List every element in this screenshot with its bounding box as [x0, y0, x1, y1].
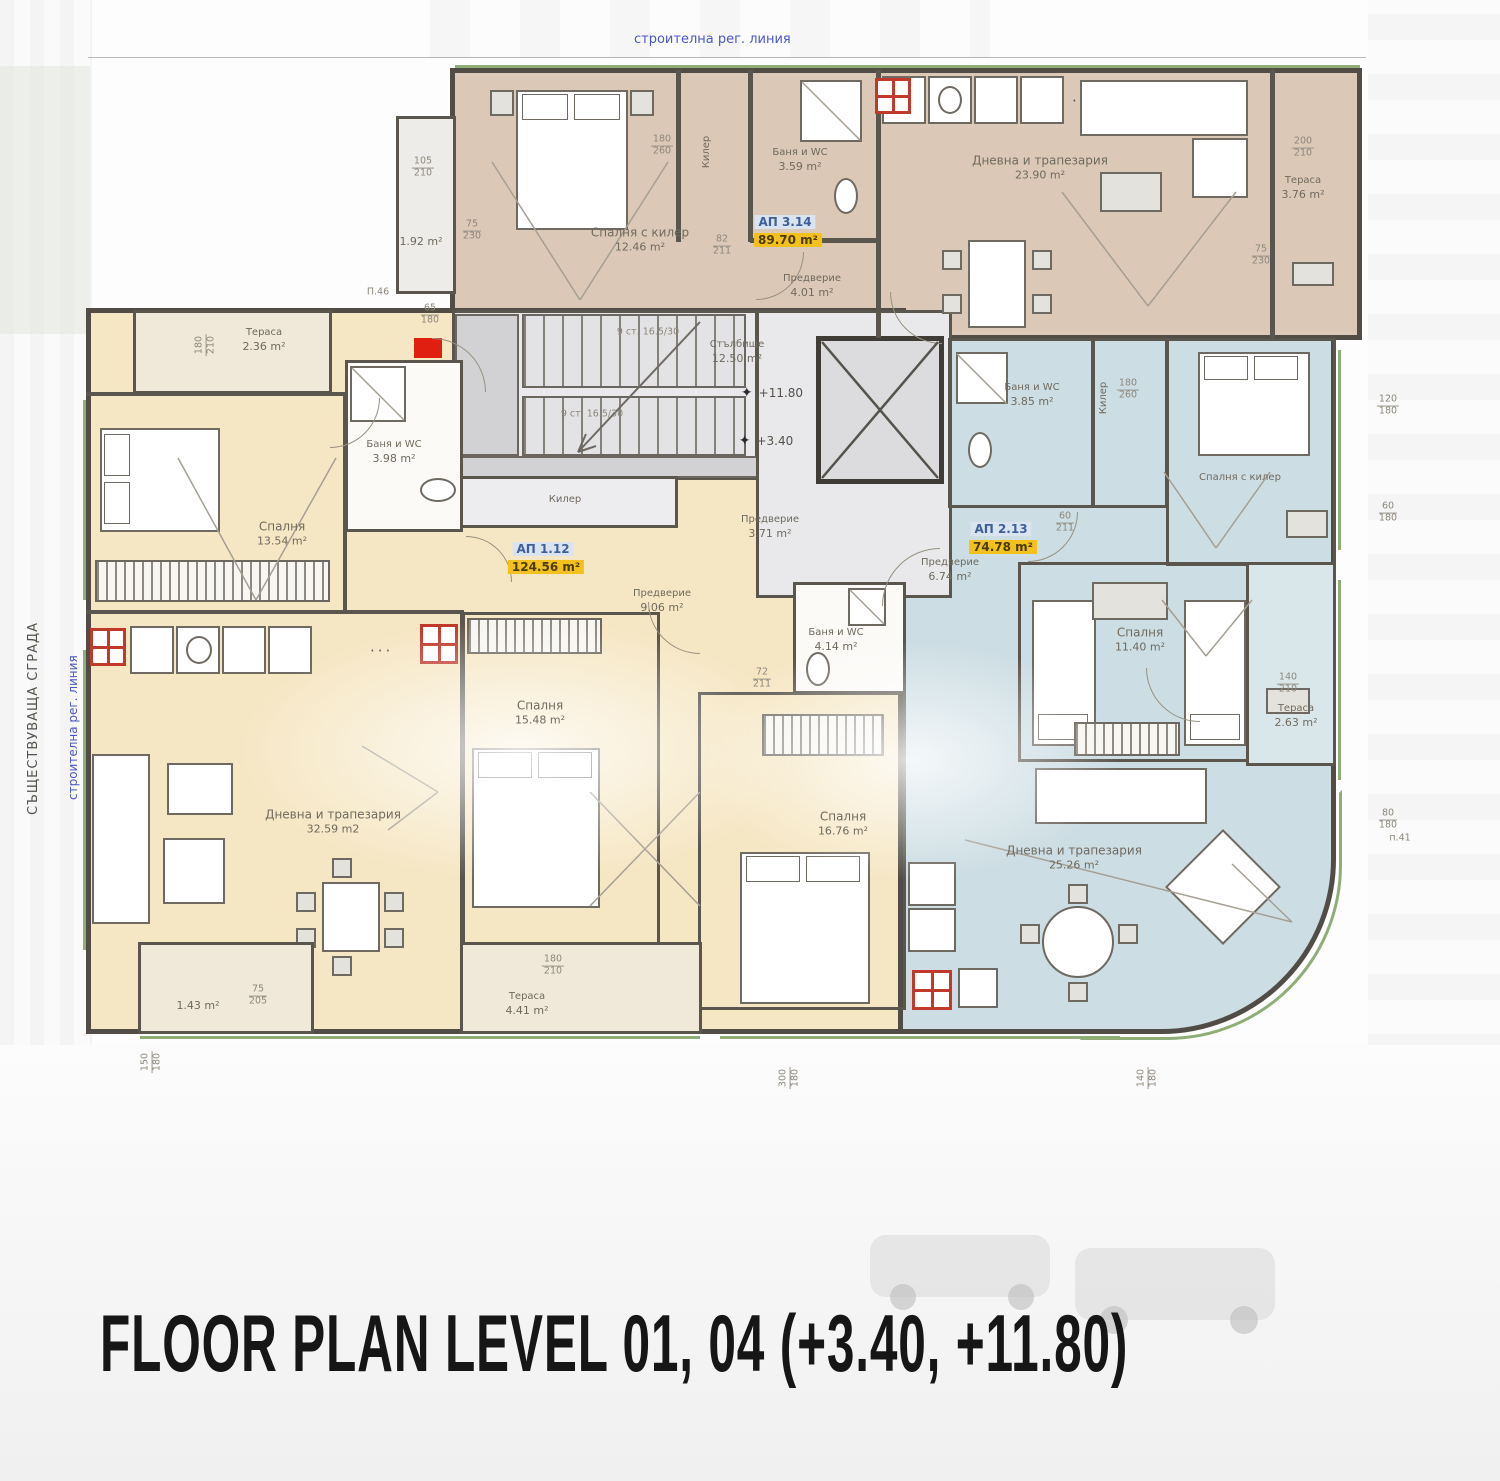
- dimension-label: 150180: [141, 1051, 164, 1073]
- room-label-bedroom-blue: Спалня 11.40 m²: [1115, 626, 1165, 655]
- dining-table-icon: [968, 240, 1026, 328]
- dimension-label: 65180: [421, 304, 439, 327]
- background-street: [0, 1045, 1500, 1481]
- dimension-label: 120180: [1377, 395, 1399, 418]
- dimension-label: 60211: [1056, 512, 1074, 535]
- room-label-terrace-small: 1.92 m²: [399, 235, 442, 249]
- kitchen-sink: [908, 908, 956, 952]
- dimension-label: 180260: [651, 135, 673, 158]
- background-greenery: [0, 66, 90, 334]
- dimension-label: 180210: [542, 955, 564, 978]
- room-label-bedroom-closet-blue: Спалня с килер: [1199, 472, 1281, 485]
- apartment-area-badge: 124.56 m²: [508, 560, 584, 574]
- chair-icon: [296, 892, 316, 912]
- stair-note: 9 ст. 16.5/30: [561, 409, 623, 420]
- coffee-table-icon: [1100, 172, 1162, 212]
- armchair-icon: [167, 763, 233, 815]
- shower-icon: [956, 352, 1008, 404]
- window-line: [83, 650, 86, 950]
- pillow-icon: [104, 434, 130, 476]
- sofa-icon: [92, 754, 150, 924]
- apartment-area-badge: 89.70 m²: [754, 233, 822, 247]
- desk-icon: [1092, 582, 1168, 620]
- room-label-bedroom-3: Спалня 16.76 m²: [818, 810, 868, 839]
- dimension-label: 75205: [249, 985, 267, 1008]
- shower-icon: [800, 80, 862, 142]
- wall: [1270, 70, 1275, 338]
- elevator: [816, 336, 944, 484]
- room-label-closet-tan: Килер: [701, 136, 714, 169]
- room-label-lobby: Предверие 3.71 m²: [741, 514, 799, 540]
- dimension-label: 75230: [1252, 245, 1270, 268]
- room-label-bath-tan: Баня и WC 3.59 m²: [772, 147, 827, 173]
- pillow-icon: [1204, 356, 1248, 380]
- chair-icon: [384, 928, 404, 948]
- apartment-id-badge: АП 2.13: [970, 522, 1031, 536]
- wall: [86, 610, 464, 614]
- room-label-bath-1: Баня и WC 3.98 m²: [366, 439, 421, 465]
- chair-icon: [332, 956, 352, 976]
- pillow-icon: [1254, 356, 1298, 380]
- terrace-bottom: [460, 942, 702, 1034]
- level-mark-icon: ✦: [741, 385, 753, 401]
- shower-icon: [848, 588, 886, 626]
- room-label-terrace-blue: Тераса 2.63 m²: [1274, 703, 1317, 729]
- room-label-terrace-tan: Тераса 3.76 m²: [1281, 175, 1324, 201]
- window-line: [1338, 580, 1341, 780]
- sink-basin-icon: [938, 86, 962, 114]
- chair-icon: [942, 250, 962, 270]
- page-title: FLOOR PLAN LEVEL 01, 04 (+3.40, +11.80): [100, 1298, 1128, 1390]
- existing-building-label: СЪЩЕСТВУВАЩА СГРАДА: [26, 622, 41, 815]
- dimension-label: 180260: [1117, 379, 1139, 402]
- dresser-icon: [1286, 510, 1328, 538]
- stair-landing-bottom: [452, 456, 758, 478]
- room-label-living-1: Дневна и трапезария 32.59 m2: [265, 808, 401, 837]
- room-label-living-blue: Дневна и трапезария 25.26 m²: [1006, 844, 1142, 873]
- room-label-bath-2: Баня и WC 4.14 m²: [808, 627, 863, 653]
- window-line: [83, 400, 86, 600]
- pillow-icon: [522, 94, 568, 120]
- window-line: [1338, 350, 1341, 550]
- closet-blue-walls: [1092, 338, 1168, 508]
- background-car-wheel: [1230, 1306, 1258, 1334]
- sink-basin-icon: [186, 636, 212, 664]
- window-line: [720, 1036, 1120, 1039]
- vent-shaft-icon: [912, 970, 952, 1010]
- room-label-common-closet: Килер: [549, 494, 582, 507]
- window-line: [455, 65, 1360, 68]
- dimension-label: 82211: [713, 235, 731, 258]
- pillow-icon: [104, 482, 130, 524]
- floor-plan-page: строителна рег. линия строителна рег. ли…: [0, 0, 1500, 1481]
- dimension-label: 140180: [1137, 1067, 1160, 1089]
- chair-icon: [384, 892, 404, 912]
- plot-marker: п.41: [1389, 833, 1410, 844]
- chair-icon: [1032, 294, 1052, 314]
- apartment-id-badge: АП 1.12: [512, 542, 573, 556]
- armchair-icon: [163, 838, 225, 904]
- stair-flight-lower: [522, 396, 746, 456]
- dimension-label: 72211: [753, 668, 771, 691]
- balcony-bottom-left: [138, 942, 314, 1034]
- vent-shaft-icon: [875, 78, 911, 114]
- toilet-icon: [420, 478, 456, 502]
- toilet-icon: [834, 178, 858, 214]
- nightstand-icon: [490, 90, 514, 116]
- room-label-living-tan: Дневна и трапезария 23.90 m²: [972, 154, 1108, 183]
- wall: [86, 392, 346, 396]
- dimension-label: 140210: [1277, 673, 1299, 696]
- wall: [676, 70, 681, 242]
- terrace-small-top-left: [396, 116, 456, 294]
- room-label-stairwell: Стълбище 12.50 m²: [710, 339, 765, 365]
- vent-shaft-icon: [90, 628, 126, 666]
- terrace-top-cream: [133, 310, 332, 394]
- room-label-hall-blue: Предверие 6.74 m²: [921, 557, 979, 583]
- terrace-blue: [1246, 562, 1336, 766]
- nightstand-icon: [630, 90, 654, 116]
- apartment-area-badge: 74.78 m²: [969, 540, 1037, 554]
- dimension-label: 105210: [412, 157, 434, 180]
- room-label-hall-tan: Предверие 4.01 m²: [783, 273, 841, 299]
- kitchen-stove: [958, 968, 998, 1008]
- room-label-terrace-top: Тераса 2.36 m²: [242, 327, 285, 353]
- dimension-label: 180210: [195, 334, 218, 356]
- chair-icon: [1020, 924, 1040, 944]
- room-label-balcony: 1.43 m²: [176, 999, 219, 1013]
- background-facade-top: [430, 0, 990, 58]
- room-label-bedroom-2: Спалня 15.48 m²: [515, 699, 565, 728]
- chair-icon: [942, 294, 962, 314]
- toilet-icon: [968, 432, 992, 468]
- window-line: [140, 1036, 700, 1039]
- room-label-closet-blue: Килер: [1098, 382, 1111, 415]
- dining-table-icon: [322, 882, 380, 952]
- level-mark: ✦+3.40: [739, 433, 794, 449]
- dimension-label: 75230: [463, 220, 481, 243]
- pillow-icon: [574, 94, 620, 120]
- room-label-bedroom-1: Спалня 13.54 m²: [257, 520, 307, 549]
- kitchen-counter: [1020, 76, 1064, 124]
- dimension-label: 60180: [1379, 502, 1397, 525]
- chair-icon: [1032, 250, 1052, 270]
- stair-note: 9 ст. 16.5/30: [617, 327, 679, 338]
- kitchen-counter: [130, 626, 174, 674]
- room-label-terrace-bottom: Тераса 4.41 m²: [505, 991, 548, 1017]
- room-label-bath-blue: Баня и WC 3.85 m²: [1004, 382, 1059, 408]
- regulation-line-top: [88, 57, 1366, 58]
- wall: [748, 70, 753, 242]
- dimension-label: 80180: [1379, 809, 1397, 832]
- apartment-id-badge: АП 3.14: [754, 215, 815, 229]
- sofa-icon: [1192, 138, 1248, 198]
- sofa-icon: [1080, 80, 1248, 136]
- wardrobe-icon: [95, 560, 330, 602]
- dimension-label: 300180: [779, 1067, 802, 1089]
- room-label-hall-1: Предверие 9.06 m²: [633, 588, 691, 614]
- level-mark-icon: ✦: [739, 433, 751, 449]
- level-mark: ✦+11.80: [741, 385, 803, 401]
- regulation-line-left-label: строителна рег. линия: [66, 655, 80, 800]
- kitchen-stove: [974, 76, 1018, 124]
- plot-marker: П.46: [367, 287, 389, 298]
- planter-icon: [1292, 262, 1334, 286]
- regulation-line-top-label: строителна рег. линия: [634, 32, 791, 47]
- room-label-bedroom-closet-tan: Спалня с килер 12.46 m²: [591, 226, 689, 255]
- dimension-label: 200210: [1292, 137, 1314, 160]
